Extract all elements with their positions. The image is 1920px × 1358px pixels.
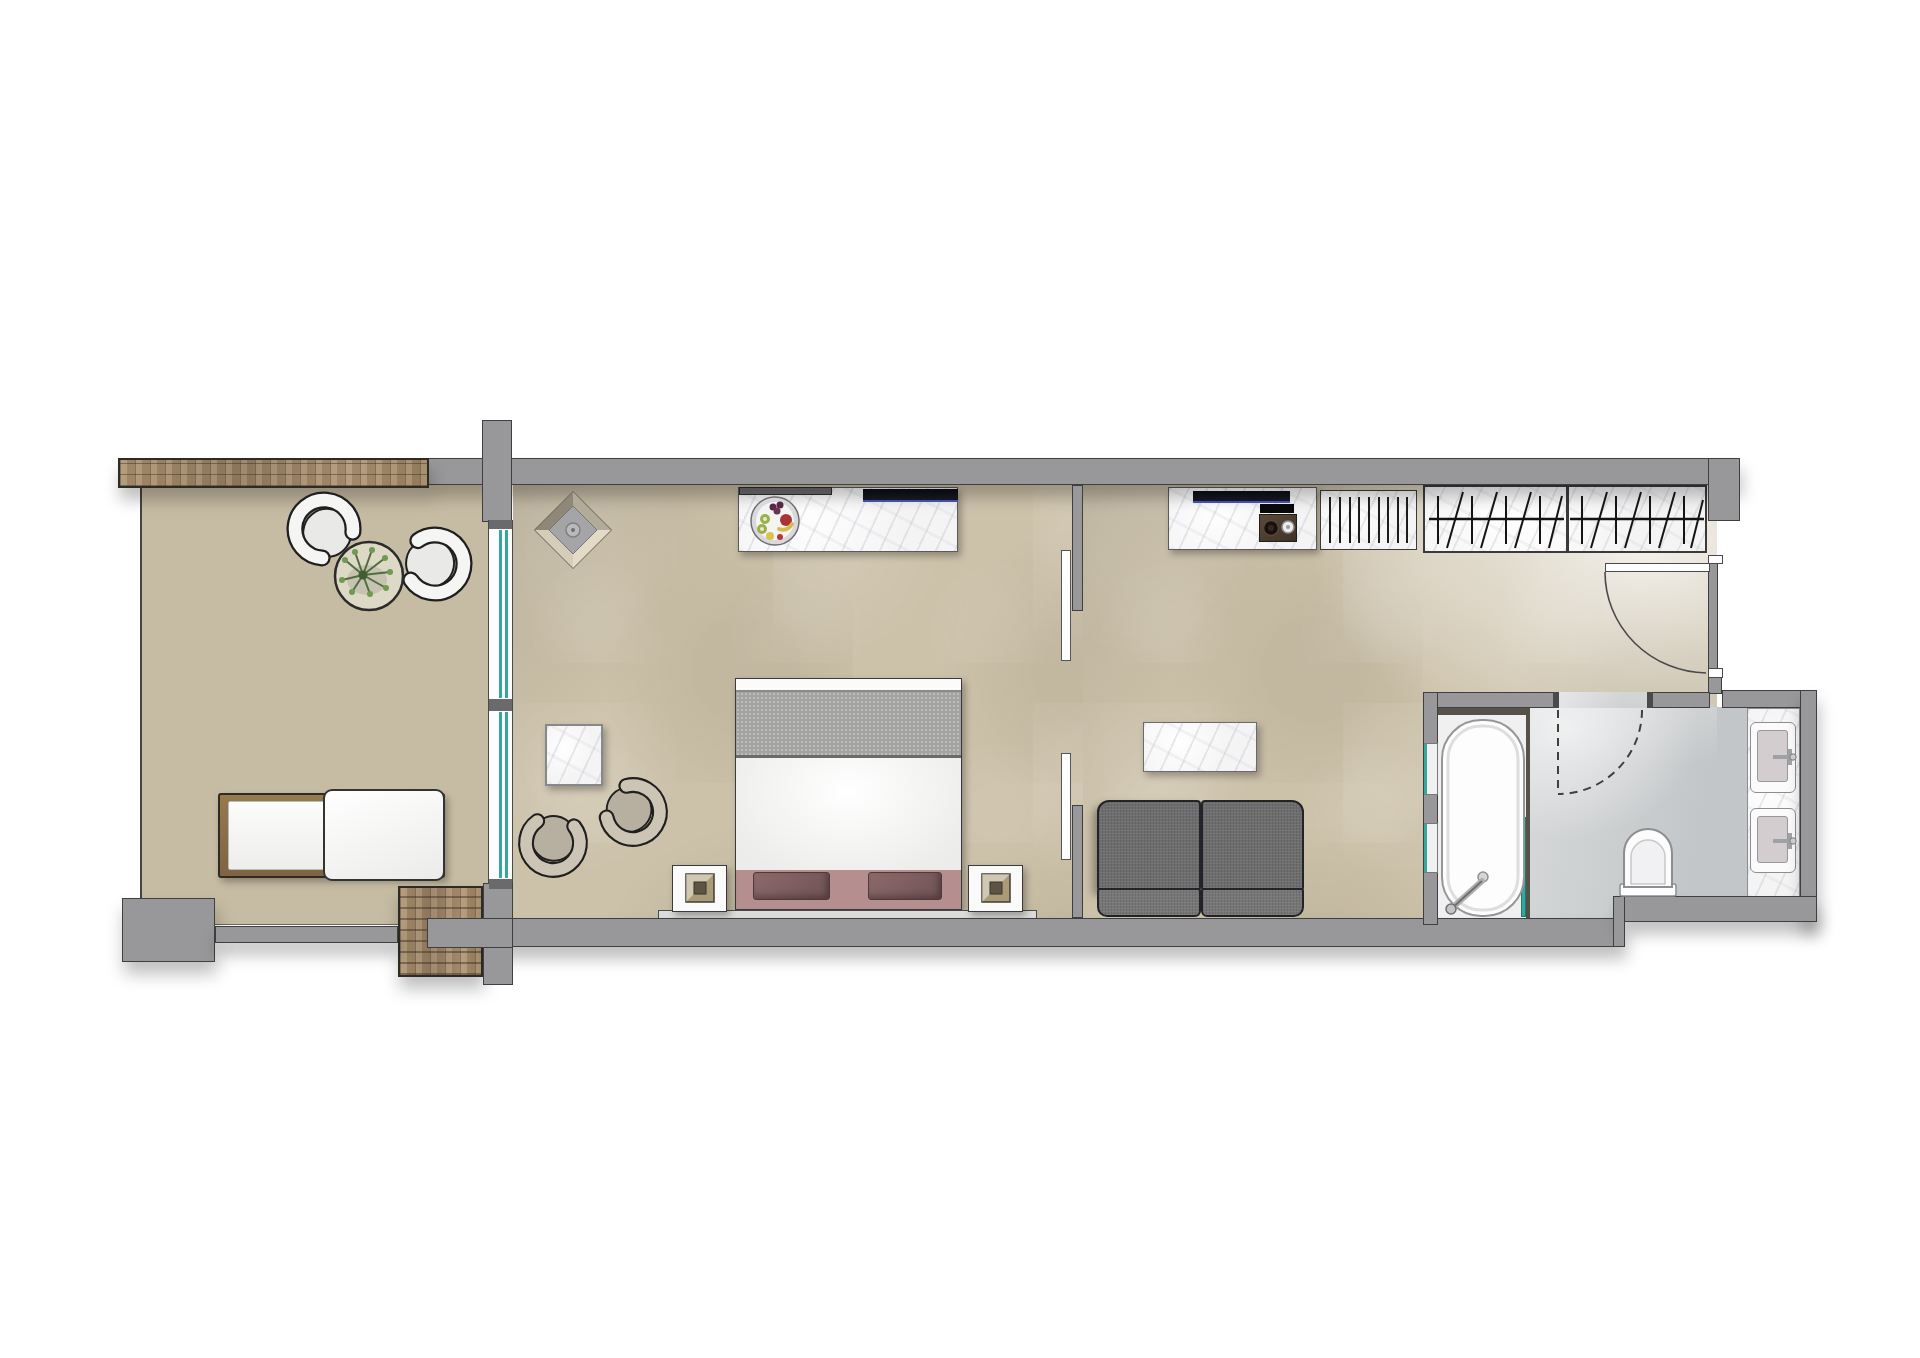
sofa-back-right (1201, 800, 1304, 890)
partition-upper (1072, 485, 1083, 611)
cooktop (1259, 514, 1297, 542)
bedroom-side-table (545, 724, 603, 786)
glass-door-mullion (489, 699, 512, 711)
entry-doorstop-bottom (1708, 668, 1723, 678)
tv-living (1193, 491, 1290, 503)
coffee-table (1143, 722, 1257, 772)
bed-headboard (736, 679, 961, 692)
wardrobe (1423, 485, 1707, 553)
bath-bottom-wall-right (1617, 896, 1817, 922)
media-slot (1260, 504, 1294, 513)
bath-door-jamb-left (1553, 692, 1559, 708)
bath-niche-top (1424, 743, 1438, 795)
bed-blanket (736, 692, 961, 758)
entry-door-leaf (1605, 563, 1710, 572)
partition-lower (1072, 805, 1083, 918)
glass-door-top-jamb (489, 520, 512, 529)
glass-pane-upper (499, 530, 502, 698)
glass-pane-lower (499, 712, 502, 878)
sink-bottom-basin (1757, 816, 1788, 863)
bathtub-area-floor (1438, 707, 1530, 920)
bath-niche-bottom (1424, 823, 1438, 873)
entry-side-wall (1708, 563, 1718, 670)
glass-pane-upper-2 (505, 530, 508, 698)
main-bottom-wall (483, 918, 1625, 947)
top-wall (427, 458, 1740, 485)
bath-east-wall (1800, 690, 1817, 922)
nightstand-right (968, 865, 1023, 912)
pocket-door-lower (1061, 753, 1071, 860)
sink-top-basin (1757, 730, 1788, 782)
console-ledge (739, 487, 832, 495)
terrace-bottom-wall (215, 926, 398, 943)
stone-pier-cross-wall (427, 918, 513, 948)
stone-wall-top (118, 458, 429, 488)
sofa-seat-right (1201, 888, 1304, 917)
tv-bedroom (863, 489, 958, 502)
bathtub-area-right-trim (1526, 707, 1530, 918)
bathtub-area-top-trim (1438, 707, 1530, 715)
floor-plan (0, 0, 1920, 1358)
sofa-back-left (1097, 800, 1201, 890)
luggage-rack (1320, 490, 1417, 550)
pier-top (482, 420, 512, 522)
pocket-door-upper (1061, 550, 1071, 661)
entry-doorstop-top (1708, 555, 1723, 564)
bath-step-wall (1613, 896, 1625, 947)
bath-glass-screen (1521, 817, 1526, 917)
glass-door-bottom-jamb (489, 879, 512, 889)
bath-west-wall (1423, 692, 1438, 925)
bench-cushion-left (753, 872, 830, 900)
sofa-seat-left (1097, 888, 1201, 917)
bench-cushion-right (868, 872, 942, 900)
nightstand-left (672, 865, 727, 912)
corner-top-right (1708, 458, 1740, 521)
bath-north-wall-left (1423, 692, 1556, 708)
bath-door-jamb-right (1647, 692, 1653, 708)
bath-north-wall-right (1650, 692, 1710, 708)
wardrobe-divider (1566, 487, 1569, 551)
bed-duvet (736, 758, 961, 870)
sun-lounger-backrest (323, 789, 445, 881)
shower-floor-highlight (1530, 708, 1710, 848)
glass-pane-lower-2 (505, 712, 508, 878)
post-bottom-left (122, 898, 215, 962)
